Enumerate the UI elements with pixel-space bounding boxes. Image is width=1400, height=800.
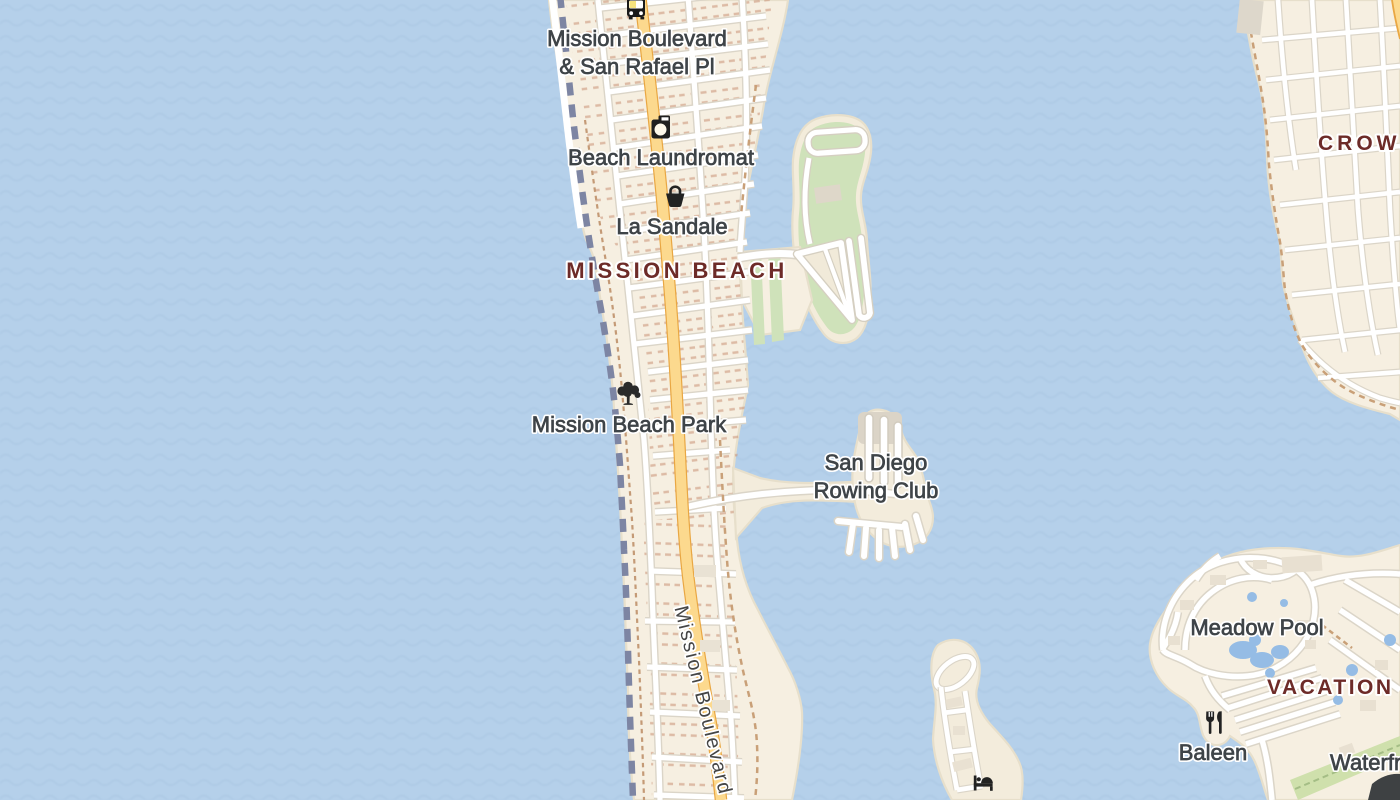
- svg-text:Mission Beach Park: Mission Beach Park: [532, 412, 727, 437]
- svg-text:Meadow Pool: Meadow Pool: [1190, 615, 1323, 640]
- svg-text:Mission Boulevard: Mission Boulevard: [547, 26, 727, 51]
- svg-text:CROWN POINT: CROWN POINT: [1318, 132, 1400, 155]
- svg-text:& San Rafael Pl: & San Rafael Pl: [559, 54, 714, 79]
- svg-text:Beach Laundromat: Beach Laundromat: [568, 145, 754, 170]
- svg-text:VACATION ISLE: VACATION ISLE: [1267, 676, 1400, 699]
- svg-text:Baleen: Baleen: [1179, 740, 1248, 765]
- svg-text:Rowing Club: Rowing Club: [814, 478, 939, 503]
- svg-text:MISSION BEACH: MISSION BEACH: [566, 258, 787, 283]
- svg-text:Waterfront: Waterfront: [1330, 750, 1400, 775]
- svg-text:San Diego: San Diego: [825, 450, 928, 475]
- svg-text:La Sandale: La Sandale: [616, 214, 727, 239]
